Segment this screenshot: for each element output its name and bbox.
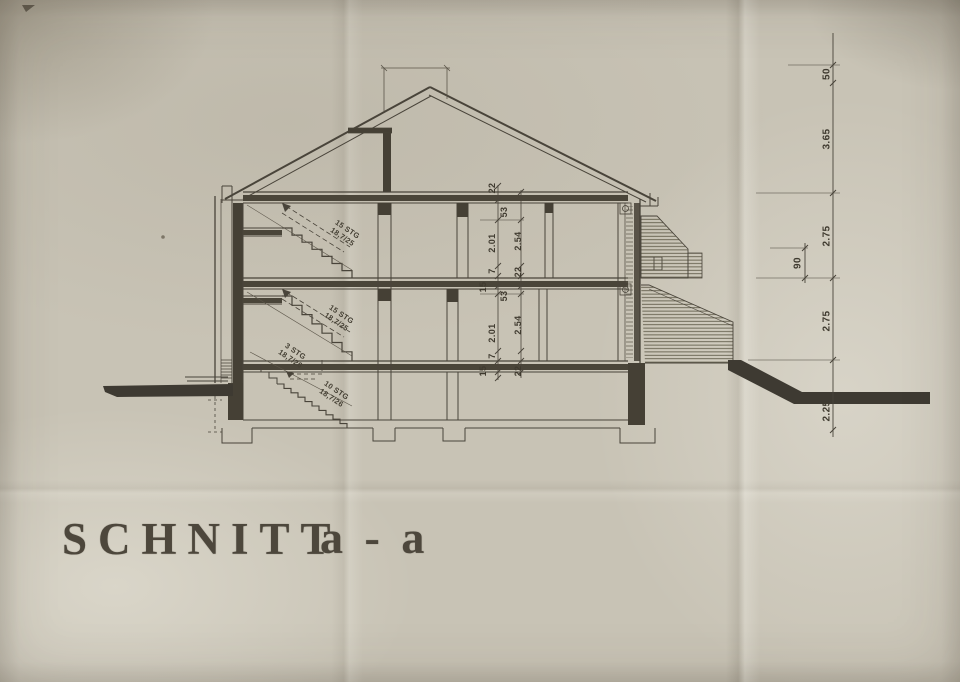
dim-label-parapet: 53 <box>499 207 509 218</box>
dim-label-ridge: 50 <box>822 68 833 80</box>
blueprint-sheet: 22 53 2.01 2.54 7 22 15 53 2.01 2.54 7 1… <box>0 0 960 682</box>
section-drawing <box>0 0 960 682</box>
dim-label-slab: 22 <box>487 183 497 194</box>
dim-label-clear-height: 2.01 <box>487 233 497 252</box>
dim-label-clear-height: 2.01 <box>487 323 497 342</box>
dim-label-screed: 7 <box>487 268 497 273</box>
terrain-right <box>641 216 930 404</box>
dim-label-parapet: 53 <box>499 291 509 302</box>
interior-walls <box>378 203 553 420</box>
drawing-title: SCHNITT <box>62 513 342 565</box>
terrain-left <box>103 377 233 397</box>
paper-marks <box>22 5 165 239</box>
dim-label-ground-storey: 2.75 <box>822 310 833 331</box>
dim-label-upper-storey: 2.75 <box>822 225 833 246</box>
dim-label-parapet-right: 90 <box>793 257 804 269</box>
dim-label-storey-height: 2.54 <box>513 231 523 250</box>
dim-label-storey-height: 2.54 <box>513 315 523 334</box>
section-mark: a - a <box>320 511 429 564</box>
dim-label-slab: 22 <box>513 267 523 278</box>
stairs-upper-flight <box>243 203 352 278</box>
dim-label-slab: 22 <box>513 366 523 377</box>
dim-label-slab-part: 15 <box>478 282 488 293</box>
floor-slabs <box>243 192 628 428</box>
dim-label-basement: 2.25 <box>822 400 833 421</box>
dim-label-slab-part: 15 <box>478 366 488 377</box>
dim-label-roof-height: 3.65 <box>822 128 833 149</box>
roof <box>222 65 658 206</box>
dim-label-screed: 7 <box>487 353 497 358</box>
